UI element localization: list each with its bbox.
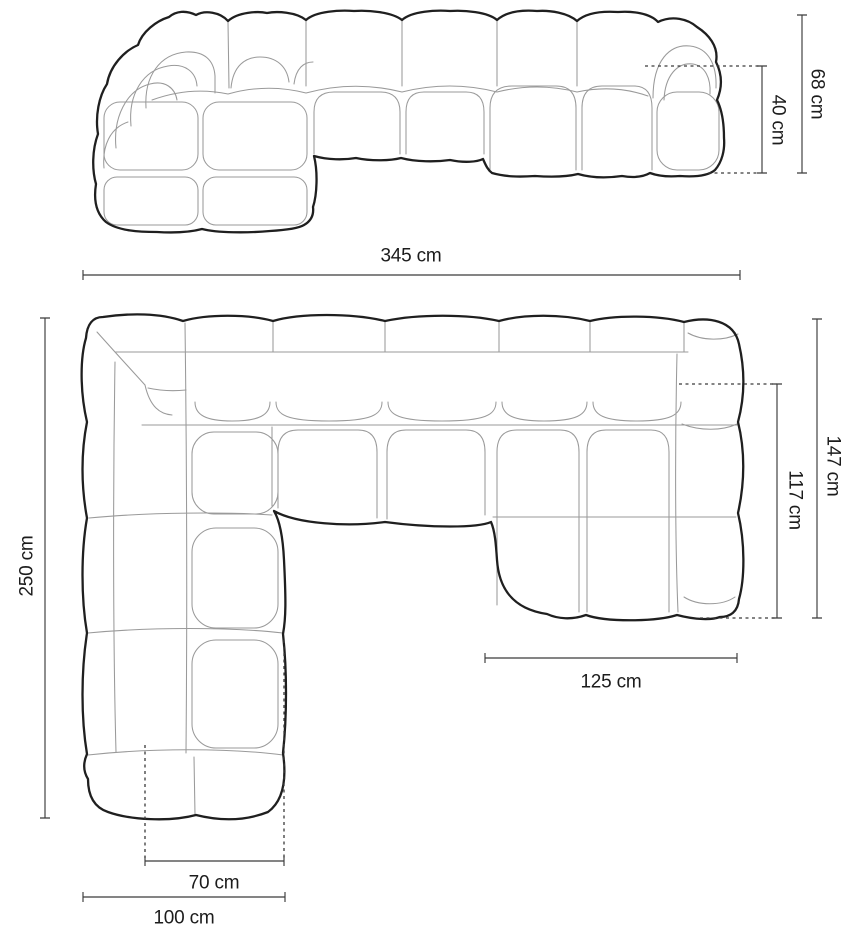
top-seams — [88, 322, 738, 815]
seam-path — [148, 388, 186, 391]
dim-line-total-height — [797, 15, 807, 173]
seam-path — [657, 92, 719, 170]
seam-path — [195, 402, 270, 421]
dim-label-total-height: 68 cm — [808, 69, 827, 120]
seam-path — [406, 92, 484, 154]
sofa-dimension-drawing: 345 cm 68 cm 40 cm 250 cm 147 cm 117 cm … — [0, 0, 860, 940]
dim-label-right-section-depth: 147 cm — [824, 435, 843, 496]
seam-path — [587, 430, 669, 612]
dim-line-total-length — [83, 270, 740, 280]
seam-path — [593, 402, 681, 421]
seam-path — [388, 402, 496, 421]
seam-path — [653, 46, 716, 98]
dim-line-seat-height — [757, 66, 767, 173]
seam-path — [676, 354, 678, 612]
seam-path — [146, 52, 215, 108]
front-outline — [93, 11, 724, 233]
seam-path — [104, 177, 198, 225]
seam-path — [114, 362, 116, 752]
seam-path — [203, 177, 307, 225]
seam-path — [684, 597, 735, 604]
dimension-annotations — [40, 15, 822, 902]
seam-path — [688, 333, 738, 339]
technical-drawing-svg — [0, 0, 860, 940]
seam-path — [97, 332, 145, 385]
seam-path — [294, 62, 313, 84]
dim-label-seat-height: 40 cm — [769, 95, 788, 146]
dim-line-chaise-seat-width — [145, 856, 284, 866]
seam-path — [490, 86, 576, 170]
top-view-drawing — [82, 314, 744, 819]
seam-path — [192, 640, 278, 748]
seam-path — [203, 102, 307, 170]
seam-path — [387, 430, 485, 519]
dim-line-right-seat-depth — [772, 384, 782, 618]
dim-line-total-depth — [40, 318, 50, 818]
seam-path — [664, 64, 710, 100]
seam-path — [497, 430, 579, 612]
dim-label-right-section-width: 125 cm — [580, 673, 641, 692]
seam-path — [278, 430, 377, 518]
dim-line-chaise-width — [83, 892, 285, 902]
dim-line-right-width — [485, 653, 737, 663]
dim-label-chaise-seat-width: 70 cm — [189, 874, 240, 893]
seam-path — [276, 402, 382, 421]
seam-path — [314, 92, 400, 154]
dim-label-total-depth: 250 cm — [18, 535, 37, 596]
dim-label-right-seat-depth: 117 cm — [786, 470, 805, 530]
seam-path — [502, 402, 587, 421]
seam-path — [192, 432, 278, 514]
seam-path — [152, 86, 648, 100]
seam-path — [104, 102, 198, 170]
dim-label-chaise-total-width: 100 cm — [153, 909, 214, 928]
seam-path — [88, 629, 283, 634]
seam-path — [231, 57, 289, 88]
dim-label-total-length: 345 cm — [380, 247, 441, 266]
seam-path — [194, 757, 195, 815]
front-seams — [104, 20, 719, 225]
front-view-drawing — [93, 11, 724, 233]
seam-path — [185, 323, 187, 753]
dim-line-right-depth — [812, 319, 822, 618]
seam-path — [228, 22, 229, 88]
seam-path — [582, 86, 652, 170]
seam-path — [273, 322, 684, 352]
seam-path — [192, 528, 278, 628]
